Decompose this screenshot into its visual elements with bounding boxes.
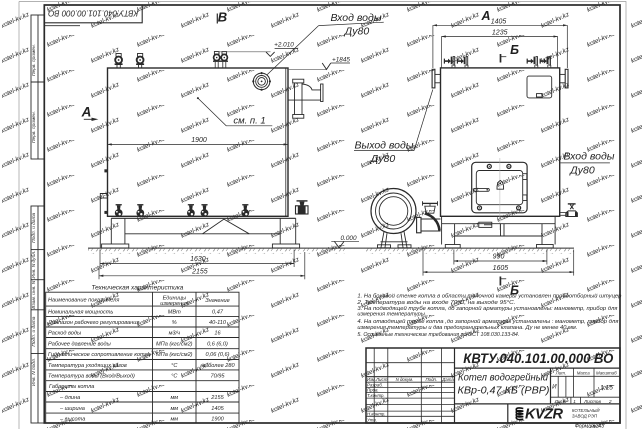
svg-text:Перв. примен.: Перв. примен. <box>31 44 37 76</box>
svg-text:1605: 1605 <box>493 265 509 272</box>
svg-text:Наименование показателя: Наименование показателя <box>48 298 119 304</box>
svg-text:Ду80: Ду80 <box>344 26 370 38</box>
svg-text:А: А <box>81 105 92 120</box>
svg-text:м3/ч: м3/ч <box>169 330 180 336</box>
svg-text:Масштаб: Масштаб <box>596 370 617 375</box>
svg-text:°С: °С <box>171 363 178 369</box>
svg-text:Лит.: Лит. <box>555 370 566 375</box>
svg-text:1405: 1405 <box>211 406 224 412</box>
svg-text:2155: 2155 <box>191 268 208 275</box>
svg-text:Рабочее давление воды: Рабочее давление воды <box>48 341 111 347</box>
svg-text:Подп. и дата: Подп. и дата <box>31 316 37 346</box>
svg-text:Габариты котла: Габариты котла <box>49 384 94 390</box>
svg-text:см. п. 1: см. п. 1 <box>233 115 265 126</box>
svg-text:Н.контр.: Н.контр. <box>367 411 386 416</box>
svg-text:0,06 (0,6): 0,06 (0,6) <box>206 352 230 358</box>
svg-text:Перв. примен.: Перв. примен. <box>31 111 37 143</box>
svg-text:А: А <box>480 9 490 23</box>
svg-text:МВт: МВт <box>168 310 181 316</box>
svg-text:Подп. и дата: Подп. и дата <box>31 212 37 242</box>
svg-text:В: В <box>218 10 227 25</box>
svg-text:0,47: 0,47 <box>212 310 224 316</box>
svg-text:1. На боковой стенке котла: 1. На боковой стенке котла в области топ… <box>357 293 621 300</box>
svg-text:Пров.: Пров. <box>367 388 379 393</box>
svg-text:Температура уходящих газов: Температура уходящих газов <box>48 363 127 369</box>
svg-text:МПа (кгс/см2): МПа (кгс/см2) <box>156 352 193 358</box>
svg-text:ЗАВОД РЭП: ЗАВОД РЭП <box>572 413 598 418</box>
svg-text:70/95: 70/95 <box>211 374 226 380</box>
svg-text:Т.контр.: Т.контр. <box>367 393 385 398</box>
svg-text:5. Остальные технические тр: 5. Остальные технические требования по О… <box>357 332 519 338</box>
svg-text:2: 2 <box>608 399 612 404</box>
svg-text:1405: 1405 <box>491 18 507 25</box>
svg-text:Б: Б <box>510 43 519 57</box>
svg-text:Утв.: Утв. <box>367 418 377 423</box>
svg-text:Ду80: Ду80 <box>370 153 396 165</box>
svg-text:КВТУ.040.101.00.000 ВО: КВТУ.040.101.00.000 ВО <box>48 9 139 18</box>
svg-text:МПа (кгс/см2): МПа (кгс/см2) <box>156 341 193 347</box>
svg-text:Выход воды: Выход воды <box>354 140 413 152</box>
svg-text:Масса: Масса <box>577 370 591 375</box>
svg-text:измерения: измерения <box>160 301 188 307</box>
svg-text:1:15: 1:15 <box>600 385 613 392</box>
svg-text:Диапазон рабочего регулирова: Диапазон рабочего регулирования <box>47 320 139 326</box>
svg-text:КВр-0,47 КБ (РВР): КВр-0,47 КБ (РВР) <box>458 386 550 397</box>
svg-text:измерения температуры и два: измерения температуры и два предохраните… <box>357 325 577 331</box>
svg-text:40-110: 40-110 <box>209 320 227 326</box>
svg-text:°С: °С <box>171 374 178 380</box>
svg-text:Вход воды: Вход воды <box>564 151 615 163</box>
svg-text:1900: 1900 <box>211 416 224 422</box>
svg-text:Инв. N дубл.: Инв. N дубл. <box>31 251 37 279</box>
svg-text:мм: мм <box>170 406 178 412</box>
svg-text:Номинальная мощность: Номинальная мощность <box>48 310 113 316</box>
svg-text:Котел водогрейный: Котел водогрейный <box>458 373 549 384</box>
svg-text:4. На отводящей трубе котл: 4. На отводящей трубе котла ,до запорной… <box>357 318 618 325</box>
svg-text:И: И <box>552 384 557 391</box>
svg-text:2. Температура воды на вхо: 2. Температура воды на входе 70°С, на вы… <box>356 300 515 306</box>
svg-text:1235: 1235 <box>492 29 508 36</box>
svg-text:0,6 (6,0): 0,6 (6,0) <box>207 341 228 347</box>
svg-text:0.000: 0.000 <box>341 235 357 242</box>
svg-text:Техническая характеристика: Техническая характеристика <box>91 285 183 292</box>
svg-text:%: % <box>172 320 177 326</box>
svg-text:990: 990 <box>493 254 505 261</box>
svg-text:Подп.: Подп. <box>425 377 437 382</box>
svg-text:KVZR: KVZR <box>525 407 564 423</box>
svg-text:1: 1 <box>573 399 576 404</box>
svg-text:мм: мм <box>170 416 178 422</box>
svg-text:Инв. N подл.: Инв. N подл. <box>31 358 37 386</box>
svg-text:Листов: Листов <box>583 399 601 404</box>
svg-text:Вход воды: Вход воды <box>331 12 382 24</box>
svg-text:КОТЕЛЬНЫЙ: КОТЕЛЬНЫЙ <box>572 408 600 413</box>
svg-text:Значение: Значение <box>205 298 230 304</box>
svg-text:16: 16 <box>214 330 221 336</box>
svg-text:– ширина: – ширина <box>59 406 85 412</box>
svg-text:Температура воды (Вход/Выход): Температура воды (Вход/Выход) <box>48 374 135 380</box>
svg-text:+1845: +1845 <box>332 57 350 64</box>
svg-text:А3: А3 <box>597 424 604 430</box>
svg-text:измерения температуры.: измерения температуры. <box>357 312 426 318</box>
svg-text:– длина: – длина <box>59 395 80 401</box>
svg-text:Расход воды: Расход воды <box>48 330 81 336</box>
svg-text:Формат: Формат <box>575 424 596 430</box>
svg-text:1900: 1900 <box>191 137 207 144</box>
svg-text:Взам. инв. N: Взам. инв. N <box>31 280 37 308</box>
svg-text:мм: мм <box>170 395 178 401</box>
svg-text:2155: 2155 <box>210 395 224 401</box>
svg-text:КВТУ.040.101.00.000 ВО: КВТУ.040.101.00.000 ВО <box>463 351 613 366</box>
svg-text:– высота: – высота <box>59 416 85 422</box>
svg-text:Изм.Лист: Изм.Лист <box>367 377 388 382</box>
svg-text:1630: 1630 <box>190 256 206 263</box>
svg-text:Гидравлическое сопротивление: Гидравлическое сопротивление котла <box>48 352 151 358</box>
svg-text:Дата: Дата <box>441 377 454 382</box>
svg-text:Лист: Лист <box>554 399 567 404</box>
svg-text:Ду80: Ду80 <box>569 164 595 176</box>
svg-text:не более 280: не более 280 <box>200 363 235 369</box>
svg-text:N докум.: N докум. <box>396 377 414 382</box>
svg-text:+2.010: +2.010 <box>274 42 294 49</box>
